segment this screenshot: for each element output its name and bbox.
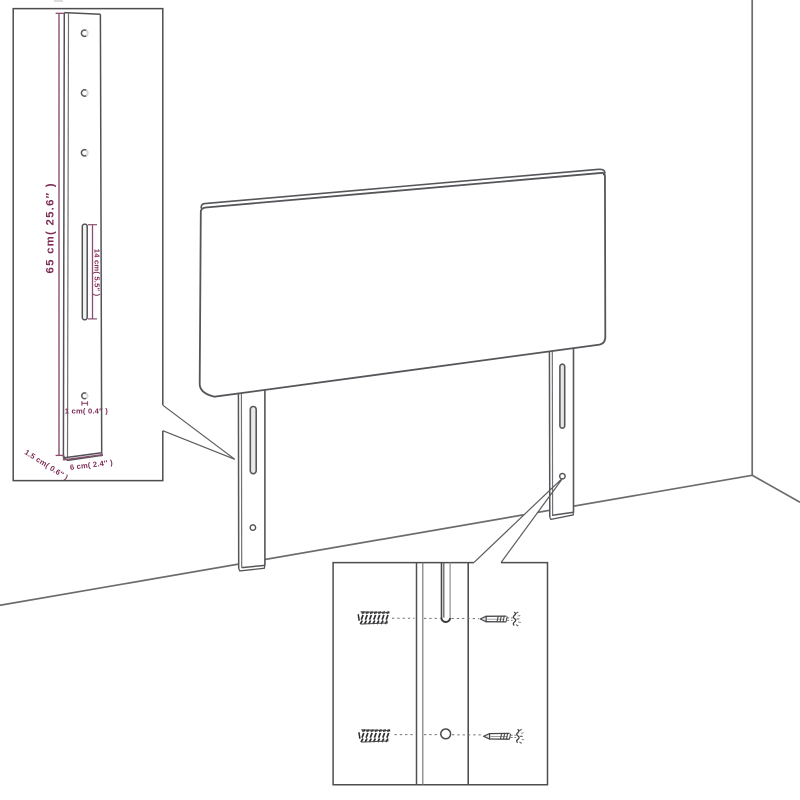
- svg-text:1 cm( 0.4″ ): 1 cm( 0.4″ ): [65, 406, 108, 415]
- svg-text:14 cm( 5.5″ ): 14 cm( 5.5″ ): [93, 249, 102, 297]
- svg-text:65 cm( 25.6″ ): 65 cm( 25.6″ ): [45, 182, 57, 273]
